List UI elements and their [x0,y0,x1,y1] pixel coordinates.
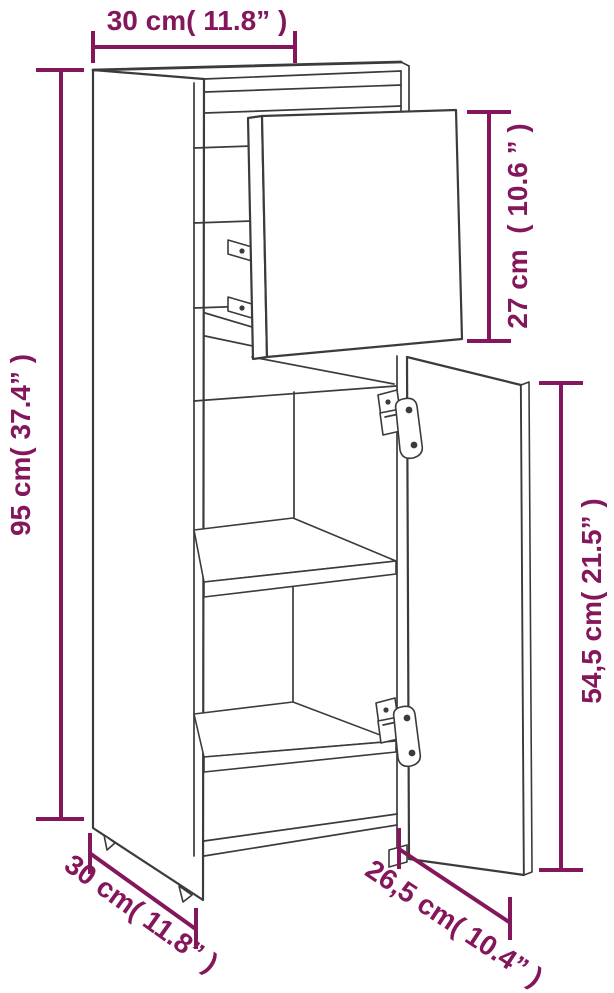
middle-shelf [194,518,396,597]
upper-door-detached [248,110,462,359]
screw-dot [239,305,244,310]
dimension-lower-door-height-label: 54,5 cm( 21.5” ) [576,498,607,703]
diagram-stage: 30 cm( 11.8” ) 27 cm ( 10.6 ” ) 95 cm( 3… [0,0,614,993]
middle-divider [194,357,396,401]
dimension-lower-door-height: 54,5 cm( 21.5” ) [539,383,607,870]
dimension-height-total: 95 cm( 37.4” ) [5,70,84,819]
bottom-shelf [194,702,396,772]
dimension-width-top-label: 30 cm( 11.8” ) [107,5,288,36]
dimension-height-total-label: 95 cm( 37.4” ) [5,354,36,536]
dimension-upper-door-height: 27 cm ( 10.6 ” ) [467,112,533,341]
screw-dot [239,248,244,253]
left-side-panel [93,70,204,902]
dimension-width-top: 30 cm( 11.8” ) [93,5,295,63]
cabinet-dimension-diagram: 30 cm( 11.8” ) 27 cm ( 10.6 ” ) 95 cm( 3… [0,0,614,993]
dimension-upper-door-height-label: 27 cm ( 10.6 ” ) [502,123,533,328]
